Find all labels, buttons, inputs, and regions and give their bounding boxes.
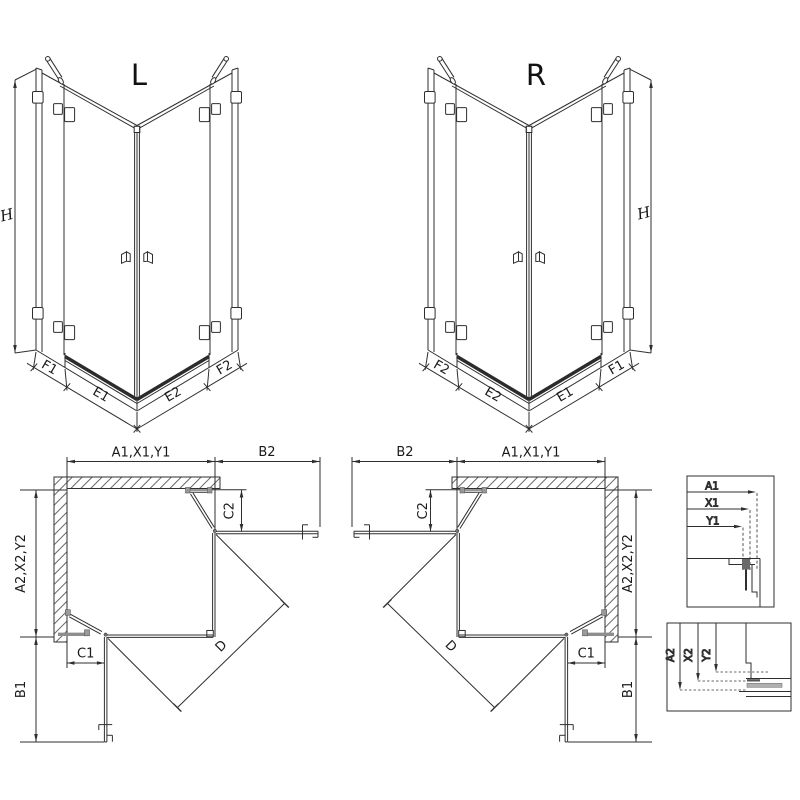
- detail-width-profile: A1 X1 Y1: [687, 476, 774, 607]
- plan-left-depth-dim: A2,X2,Y2: [14, 534, 29, 593]
- plan-right-c2-dim: C2: [416, 502, 431, 519]
- plan-left-width-dim: A1,X1,Y1: [112, 446, 171, 461]
- plan-left-diagonal-dim: D: [213, 638, 231, 656]
- dim-f2-left: F2: [214, 358, 235, 379]
- plan-left-b1-dim: B1: [14, 681, 29, 698]
- variant-label-right: R: [526, 58, 546, 92]
- detail-depth-box: [667, 623, 791, 711]
- front-view-left-graphics: [13, 57, 247, 433]
- detail-a1-label: A1: [705, 481, 719, 493]
- plan-right-depth-dim: A2,X2,Y2: [621, 534, 636, 593]
- dim-f2-right: F2: [431, 358, 452, 379]
- height-dim-label-right: H: [634, 203, 653, 224]
- detail-a2-label: A2: [665, 648, 677, 662]
- detail-depth-profile: A2 X2 Y2: [665, 623, 791, 711]
- dim-f1-right: F1: [606, 358, 627, 379]
- plan-left-c1-dim: C1: [77, 647, 94, 662]
- shower-enclosure-technical-diagram: L H F1 E1 E2 F2 R H F2 E2 E1 F1 A1,X1,Y1…: [0, 0, 800, 800]
- dim-f1-left: F1: [39, 358, 60, 379]
- plan-left-b2-dim: B2: [258, 445, 275, 460]
- height-dim-label-left: H: [0, 205, 16, 226]
- detail-width-box: [687, 476, 774, 607]
- plan-right-b1-dim: B1: [621, 681, 636, 698]
- plan-right-b2-dim: B2: [396, 445, 413, 460]
- front-view-left: L H F1 E1 E2 F2: [0, 57, 247, 433]
- plan-right-c1-dim: C1: [578, 647, 595, 662]
- plan-left-c2-dim: C2: [223, 502, 238, 519]
- plan-right-width-dim: A1,X1,Y1: [502, 446, 561, 461]
- detail-y1-label: Y1: [705, 516, 719, 528]
- plan-right-diagonal-dim: D: [442, 638, 460, 656]
- detail-y2-label: Y2: [701, 648, 713, 662]
- variant-label-left: L: [131, 58, 147, 92]
- detail-x1-label: X1: [705, 498, 719, 510]
- detail-x2-label: X2: [683, 648, 695, 662]
- front-view-right: R H F2 E2 E1 F1: [419, 57, 653, 433]
- front-view-right-graphics: [419, 57, 653, 433]
